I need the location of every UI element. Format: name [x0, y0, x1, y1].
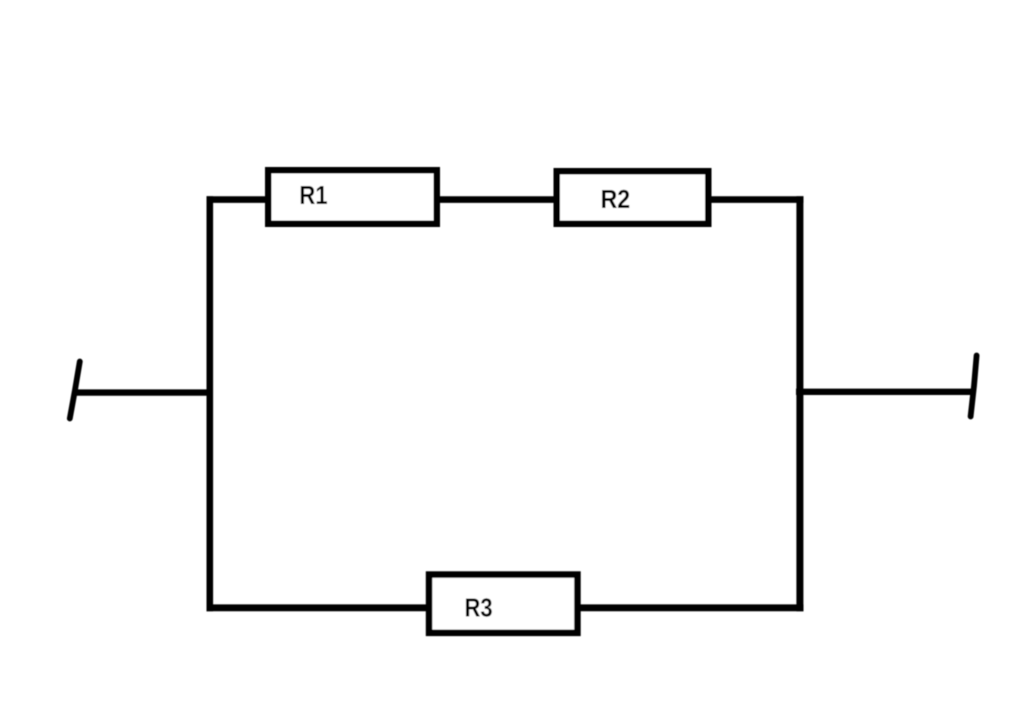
- svg-text:R1: R1: [299, 182, 327, 210]
- svg-text:R2: R2: [601, 186, 631, 214]
- svg-text:R3: R3: [465, 594, 493, 622]
